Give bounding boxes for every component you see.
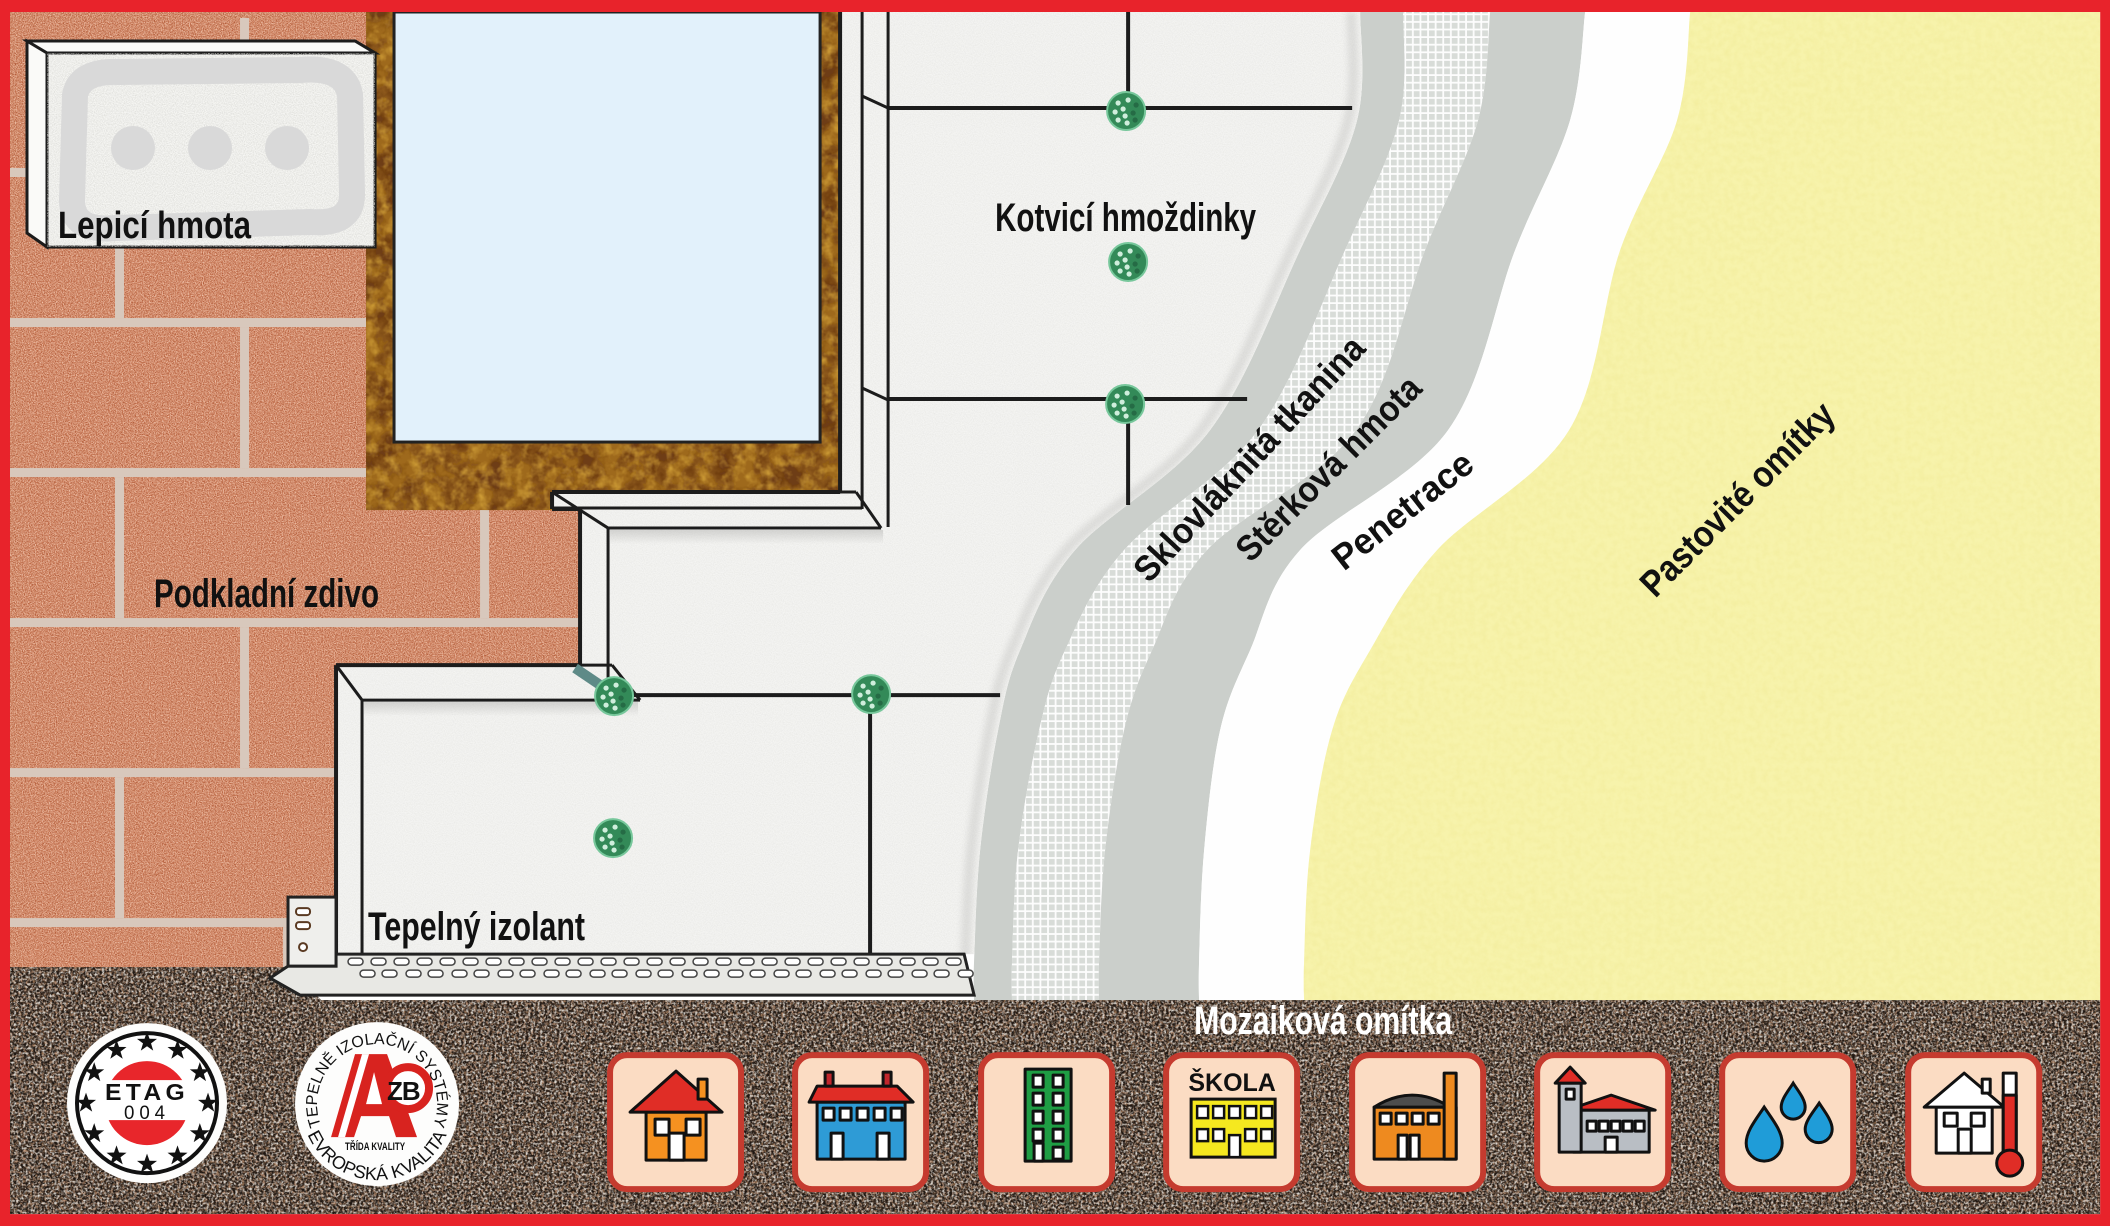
svg-text:Podkladní zdivo: Podkladní zdivo [154, 572, 379, 616]
svg-text:ETAG: ETAG [105, 1079, 189, 1105]
svg-text:ZB: ZB [387, 1076, 420, 1106]
svg-text:Mozaiková omítka: Mozaiková omítka [1194, 999, 1453, 1043]
svg-text:ŠKOLA: ŠKOLA [1188, 1067, 1275, 1097]
svg-text:Lepicí hmota: Lepicí hmota [58, 205, 252, 247]
svg-text:Tepelný izolant: Tepelný izolant [368, 905, 585, 949]
svg-text:004: 004 [124, 1103, 170, 1124]
svg-text:TŘÍDA KVALITY: TŘÍDA KVALITY [345, 1140, 405, 1153]
svg-text:Kotvicí hmoždinky: Kotvicí hmoždinky [995, 196, 1257, 240]
